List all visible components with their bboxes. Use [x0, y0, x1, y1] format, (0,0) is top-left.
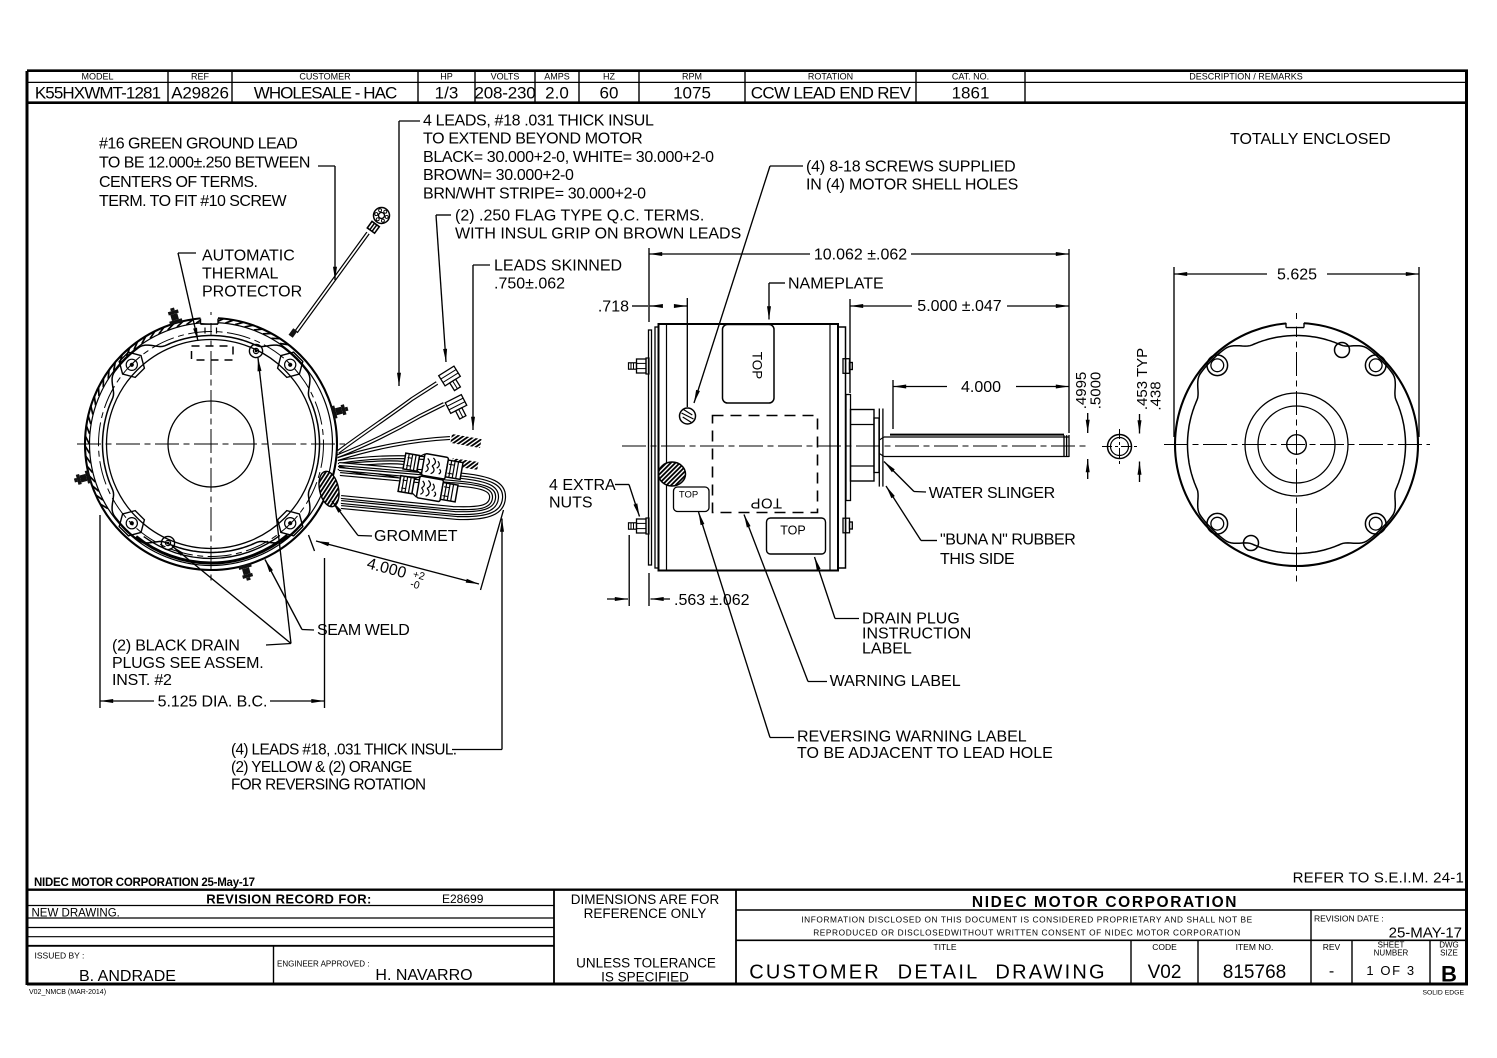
- svg-text:REPRODUCED OR DISCLOSEDWITHOUT: REPRODUCED OR DISCLOSEDWITHOUT WRITTEN C…: [813, 927, 1241, 937]
- svg-text:#16 GREEN GROUND LEAD: #16 GREEN GROUND LEAD: [99, 136, 297, 153]
- svg-text:4 EXTRA: 4 EXTRA: [549, 477, 616, 494]
- svg-text:REV: REV: [1323, 942, 1341, 952]
- svg-text:TOP: TOP: [750, 495, 782, 512]
- svg-text:(2) YELLOW & (2) ORANGE: (2) YELLOW & (2) ORANGE: [231, 759, 412, 776]
- svg-text:TOP: TOP: [679, 489, 698, 500]
- svg-text:4.000: 4.000: [961, 379, 1001, 396]
- svg-text:MODEL: MODEL: [81, 72, 113, 82]
- svg-text:5.625: 5.625: [1277, 266, 1317, 283]
- svg-text:V02: V02: [1148, 962, 1182, 983]
- svg-text:CENTERS OF TERMS.: CENTERS OF TERMS.: [99, 174, 257, 191]
- svg-text:10.062 ±.062: 10.062 ±.062: [814, 246, 907, 263]
- svg-text:REFER TO S.E.I.M. 24-1: REFER TO S.E.I.M. 24-1: [1293, 870, 1464, 887]
- svg-text:H. NAVARRO: H. NAVARRO: [375, 967, 472, 984]
- svg-text:BRN/WHT STRIPE= 30.000+2-0: BRN/WHT STRIPE= 30.000+2-0: [423, 185, 646, 202]
- svg-text:REVISION RECORD FOR:: REVISION RECORD FOR:: [206, 891, 371, 906]
- svg-text:TOTALLY ENCLOSED: TOTALLY ENCLOSED: [1230, 131, 1391, 148]
- svg-text:K55HXWMT-1281: K55HXWMT-1281: [35, 83, 161, 102]
- svg-text:"BUNA N" RUBBER: "BUNA N" RUBBER: [940, 532, 1075, 549]
- svg-text:E28699: E28699: [442, 892, 484, 906]
- svg-text:ISSUED BY :: ISSUED BY :: [35, 950, 85, 960]
- svg-text:4 LEADS, #18 .031 THICK INSUL: 4 LEADS, #18 .031 THICK INSUL: [423, 113, 654, 130]
- svg-text:ITEM NO.: ITEM NO.: [1236, 942, 1274, 952]
- svg-text:B. ANDRADE: B. ANDRADE: [79, 968, 176, 985]
- svg-text:BROWN= 30.000+2-0: BROWN= 30.000+2-0: [423, 167, 574, 184]
- svg-text:TO BE 12.000±.250 BETWEEN: TO BE 12.000±.250 BETWEEN: [99, 155, 310, 172]
- svg-text:UNLESS TOLERANCE: UNLESS TOLERANCE: [576, 956, 716, 971]
- svg-text:REVISION DATE :: REVISION DATE :: [1314, 913, 1384, 923]
- svg-text:1 OF 3: 1 OF 3: [1366, 963, 1415, 978]
- svg-text:WARNING LABEL: WARNING LABEL: [830, 673, 961, 690]
- svg-text:REVERSING WARNING LABEL: REVERSING WARNING LABEL: [797, 729, 1027, 746]
- svg-text:CUSTOMER: CUSTOMER: [299, 72, 351, 82]
- svg-text:815768: 815768: [1223, 962, 1286, 983]
- svg-text:WITH INSUL GRIP ON BROWN LEADS: WITH INSUL GRIP ON BROWN LEADS: [455, 226, 741, 243]
- svg-text:PLUGS SEE ASSEM.: PLUGS SEE ASSEM.: [112, 655, 264, 672]
- svg-text:NIDEC MOTOR CORPORATION: NIDEC MOTOR CORPORATION: [972, 894, 1238, 911]
- svg-text:AUTOMATIC: AUTOMATIC: [202, 248, 295, 265]
- svg-text:ENGINEER APPROVED :: ENGINEER APPROVED :: [277, 959, 369, 968]
- svg-text:CODE: CODE: [1152, 942, 1177, 952]
- svg-text:ROTATION: ROTATION: [808, 72, 853, 82]
- svg-text:(4) LEADS #18, .031 THICK INSU: (4) LEADS #18, .031 THICK INSUL.: [231, 742, 456, 759]
- svg-text:A29826: A29826: [171, 83, 228, 102]
- svg-text:TOP: TOP: [750, 352, 765, 380]
- svg-text:DESCRIPTION / REMARKS: DESCRIPTION / REMARKS: [1189, 72, 1303, 82]
- svg-text:AMPS: AMPS: [544, 72, 570, 82]
- svg-text:.438: .438: [1148, 381, 1165, 410]
- svg-text:TO EXTEND BEYOND MOTOR: TO EXTEND BEYOND MOTOR: [423, 131, 642, 148]
- svg-text:5.125 DIA. B.C.: 5.125 DIA. B.C.: [158, 693, 268, 710]
- svg-text:REFERENCE ONLY: REFERENCE ONLY: [584, 906, 707, 921]
- svg-text:-: -: [1329, 963, 1334, 980]
- svg-text:VOLTS: VOLTS: [491, 72, 520, 82]
- svg-text:.563 ±.062: .563 ±.062: [674, 592, 750, 609]
- svg-text:GROMMET: GROMMET: [374, 528, 458, 545]
- svg-text:60: 60: [600, 83, 619, 102]
- svg-text:WHOLESALE - HAC: WHOLESALE - HAC: [254, 83, 397, 102]
- svg-text:REF: REF: [191, 72, 210, 82]
- svg-text:THIS SIDE: THIS SIDE: [940, 551, 1014, 568]
- svg-text:HZ: HZ: [603, 72, 615, 82]
- svg-text:1/3: 1/3: [435, 83, 459, 102]
- svg-text:BLACK= 30.000+2-0, WHITE= 30.0: BLACK= 30.000+2-0, WHITE= 30.000+2-0: [423, 149, 714, 166]
- svg-text:CUSTOMER DETAIL DRAWING: CUSTOMER DETAIL DRAWING: [749, 962, 1107, 984]
- svg-text:RPM: RPM: [682, 72, 702, 82]
- svg-text:2.0: 2.0: [545, 83, 569, 102]
- svg-text:NEW DRAWING.: NEW DRAWING.: [32, 907, 120, 919]
- svg-text:TOP: TOP: [780, 524, 805, 538]
- svg-text:SIZE: SIZE: [1440, 948, 1458, 957]
- svg-text:SEAM WELD: SEAM WELD: [317, 622, 409, 639]
- svg-text:NUMBER: NUMBER: [1374, 948, 1409, 957]
- svg-text:FOR REVERSING ROTATION: FOR REVERSING ROTATION: [231, 776, 425, 793]
- svg-text:NIDEC MOTOR CORPORATION 25-May: NIDEC MOTOR CORPORATION 25-May-17: [34, 877, 255, 889]
- svg-text:NUTS: NUTS: [549, 495, 593, 512]
- svg-text:TO BE ADJACENT TO LEAD HOLE: TO BE ADJACENT TO LEAD HOLE: [797, 745, 1053, 762]
- svg-text:CCW LEAD END REV: CCW LEAD END REV: [751, 83, 912, 102]
- svg-text:TITLE: TITLE: [933, 942, 956, 952]
- svg-text:(2) .250 FLAG TYPE Q.C. TERMS.: (2) .250 FLAG TYPE Q.C. TERMS.: [455, 208, 704, 225]
- svg-text:25-MAY-17: 25-MAY-17: [1389, 925, 1462, 942]
- svg-text:LEADS SKINNED: LEADS SKINNED: [494, 258, 622, 275]
- svg-text:LABEL: LABEL: [862, 641, 912, 658]
- svg-text:PROTECTOR: PROTECTOR: [202, 284, 302, 301]
- svg-text:SOLID EDGE: SOLID EDGE: [1422, 990, 1464, 997]
- svg-text:NAMEPLATE: NAMEPLATE: [788, 275, 884, 292]
- svg-text:5.000 ±.047: 5.000 ±.047: [917, 298, 1002, 315]
- svg-text:HP: HP: [440, 72, 453, 82]
- svg-text:.5000: .5000: [1088, 372, 1105, 410]
- svg-text:IS SPECIFIED: IS SPECIFIED: [601, 969, 689, 984]
- svg-text:1861: 1861: [952, 83, 990, 102]
- svg-text:INST. #2: INST. #2: [112, 672, 172, 689]
- svg-text:IN (4) MOTOR SHELL HOLES: IN (4) MOTOR SHELL HOLES: [806, 177, 1018, 194]
- svg-text:208-230: 208-230: [475, 83, 536, 102]
- svg-text:V02_NMCB (MAR-2014): V02_NMCB (MAR-2014): [29, 989, 106, 996]
- svg-text:WATER SLINGER: WATER SLINGER: [929, 485, 1055, 502]
- svg-text:(4) 8-18 SCREWS SUPPLIED: (4) 8-18 SCREWS SUPPLIED: [806, 159, 1015, 176]
- svg-text:.718: .718: [598, 298, 629, 315]
- svg-text:TERM. TO FIT #10 SCREW: TERM. TO FIT #10 SCREW: [99, 193, 287, 210]
- svg-text:1075: 1075: [673, 83, 711, 102]
- svg-text:.750±.062: .750±.062: [494, 276, 565, 293]
- svg-text:B: B: [1441, 962, 1457, 987]
- svg-text:CAT. NO.: CAT. NO.: [952, 72, 989, 82]
- svg-text:INFORMATION DISCLOSED ON THIS: INFORMATION DISCLOSED ON THIS DOCUMENT I…: [801, 914, 1253, 924]
- svg-text:(2) BLACK DRAIN: (2) BLACK DRAIN: [112, 638, 240, 655]
- svg-text:THERMAL: THERMAL: [202, 266, 279, 283]
- svg-text:DIMENSIONS ARE FOR: DIMENSIONS ARE FOR: [571, 892, 720, 907]
